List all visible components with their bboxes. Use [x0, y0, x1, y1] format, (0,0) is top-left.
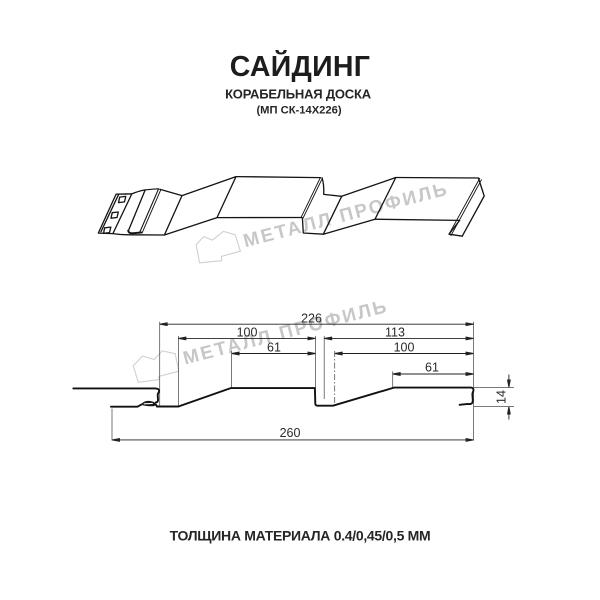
svg-text:САЙДИНГ: САЙДИНГ [230, 50, 371, 83]
svg-text:МЕТАЛЛ ПРОФИЛЬ: МЕТАЛЛ ПРОФИЛЬ [241, 178, 451, 252]
svg-text:КОРАБЕЛЬНАЯ ДОСКА: КОРАБЕЛЬНАЯ ДОСКА [225, 86, 372, 101]
svg-text:61: 61 [267, 340, 281, 354]
svg-text:14: 14 [495, 390, 509, 404]
svg-text:260: 260 [280, 426, 301, 440]
svg-text:(МП СК-14Х226): (МП СК-14Х226) [256, 105, 341, 117]
svg-text:100: 100 [237, 325, 258, 339]
svg-text:ТОЛЩИНА МАТЕРИАЛА 0.4/0,45/0,5: ТОЛЩИНА МАТЕРИАЛА 0.4/0,45/0,5 ММ [170, 527, 431, 543]
svg-text:61: 61 [425, 361, 439, 375]
svg-text:226: 226 [301, 311, 322, 325]
svg-text:МЕТАЛЛ ПРОФИЛЬ: МЕТАЛЛ ПРОФИЛЬ [181, 295, 391, 369]
svg-text:100: 100 [394, 341, 415, 355]
svg-text:113: 113 [385, 325, 405, 339]
